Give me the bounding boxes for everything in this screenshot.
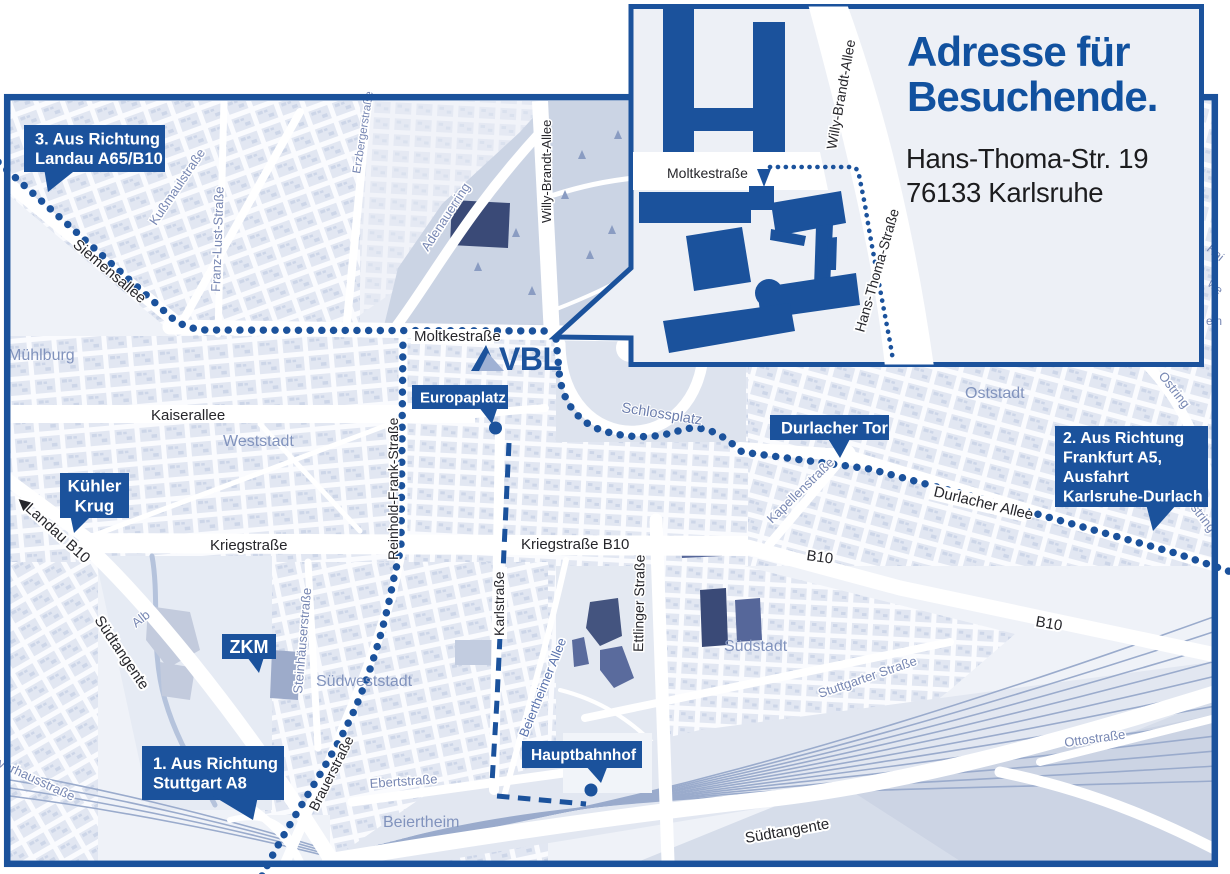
svg-text:Karlsruhe-Durlach: Karlsruhe-Durlach — [1063, 489, 1203, 506]
svg-text:Besuchende.: Besuchende. — [907, 73, 1157, 120]
svg-text:Hauptbahnhof: Hauptbahnhof — [531, 747, 637, 764]
svg-text:Kriegstraße: Kriegstraße — [210, 537, 288, 554]
svg-text:Südstadt: Südstadt — [724, 638, 788, 655]
svg-text:Kaiserallee: Kaiserallee — [151, 407, 225, 424]
svg-text:Moltkestraße: Moltkestraße — [414, 328, 501, 345]
svg-text:Hans-Thoma-Str. 19: Hans-Thoma-Str. 19 — [906, 143, 1148, 174]
svg-text:Krug: Krug — [75, 497, 115, 516]
svg-text:Beiertheim: Beiertheim — [383, 814, 459, 831]
svg-text:Weststadt: Weststadt — [223, 433, 294, 450]
svg-text:Stuttgart A8: Stuttgart A8 — [153, 775, 247, 793]
svg-text:Landau A65/B10: Landau A65/B10 — [35, 150, 163, 168]
svg-text:Adresse für: Adresse für — [907, 28, 1130, 75]
svg-text:Ausfahrt: Ausfahrt — [1063, 469, 1129, 486]
svg-text:Mühlburg: Mühlburg — [8, 347, 75, 364]
svg-text:76133 Karlsruhe: 76133 Karlsruhe — [906, 177, 1103, 208]
svg-text:Willy-Brandt-Allee: Willy-Brandt-Allee — [539, 120, 554, 223]
svg-text:Moltkestraße: Moltkestraße — [667, 165, 748, 181]
svg-text:Oststadt: Oststadt — [965, 385, 1025, 402]
svg-text:3. Aus Richtung: 3. Aus Richtung — [35, 131, 160, 149]
svg-text:Reinhold-Frank-Straße: Reinhold-Frank-Straße — [385, 417, 401, 560]
svg-text:2. Aus Richtung: 2. Aus Richtung — [1063, 430, 1184, 447]
svg-text:Karlstraße: Karlstraße — [491, 571, 507, 636]
svg-text:ZKM: ZKM — [230, 637, 269, 657]
svg-text:Frankfurt A5,: Frankfurt A5, — [1063, 450, 1162, 467]
svg-text:Durlacher Tor: Durlacher Tor — [781, 419, 889, 437]
svg-text:Ettlinger Straße: Ettlinger Straße — [630, 554, 648, 652]
svg-text:Europaplatz: Europaplatz — [420, 389, 506, 406]
svg-text:VBL: VBL — [499, 341, 562, 377]
svg-text:1. Aus Richtung: 1. Aus Richtung — [153, 755, 278, 773]
svg-text:Kriegstraße B10: Kriegstraße B10 — [521, 536, 629, 553]
svg-text:Südweststadt: Südweststadt — [316, 673, 413, 690]
svg-text:Kühler: Kühler — [68, 477, 122, 496]
